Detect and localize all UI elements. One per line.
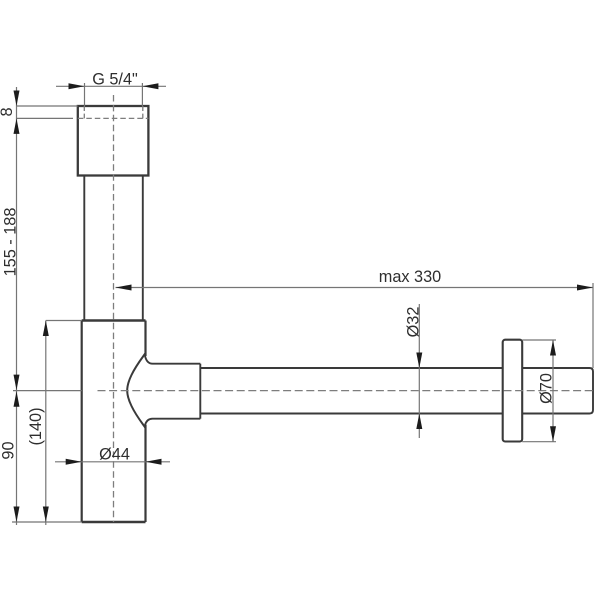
svg-text:G 5/4": G 5/4" [92,71,138,89]
svg-text:(140): (140) [27,407,45,445]
svg-text:max 330: max 330 [379,268,441,286]
svg-text:Ø32: Ø32 [405,307,423,338]
svg-text:Ø70: Ø70 [538,373,556,404]
svg-text:90: 90 [0,441,18,459]
svg-text:155 - 188: 155 - 188 [1,208,19,277]
svg-text:8: 8 [0,107,16,116]
svg-text:Ø44: Ø44 [99,445,130,463]
